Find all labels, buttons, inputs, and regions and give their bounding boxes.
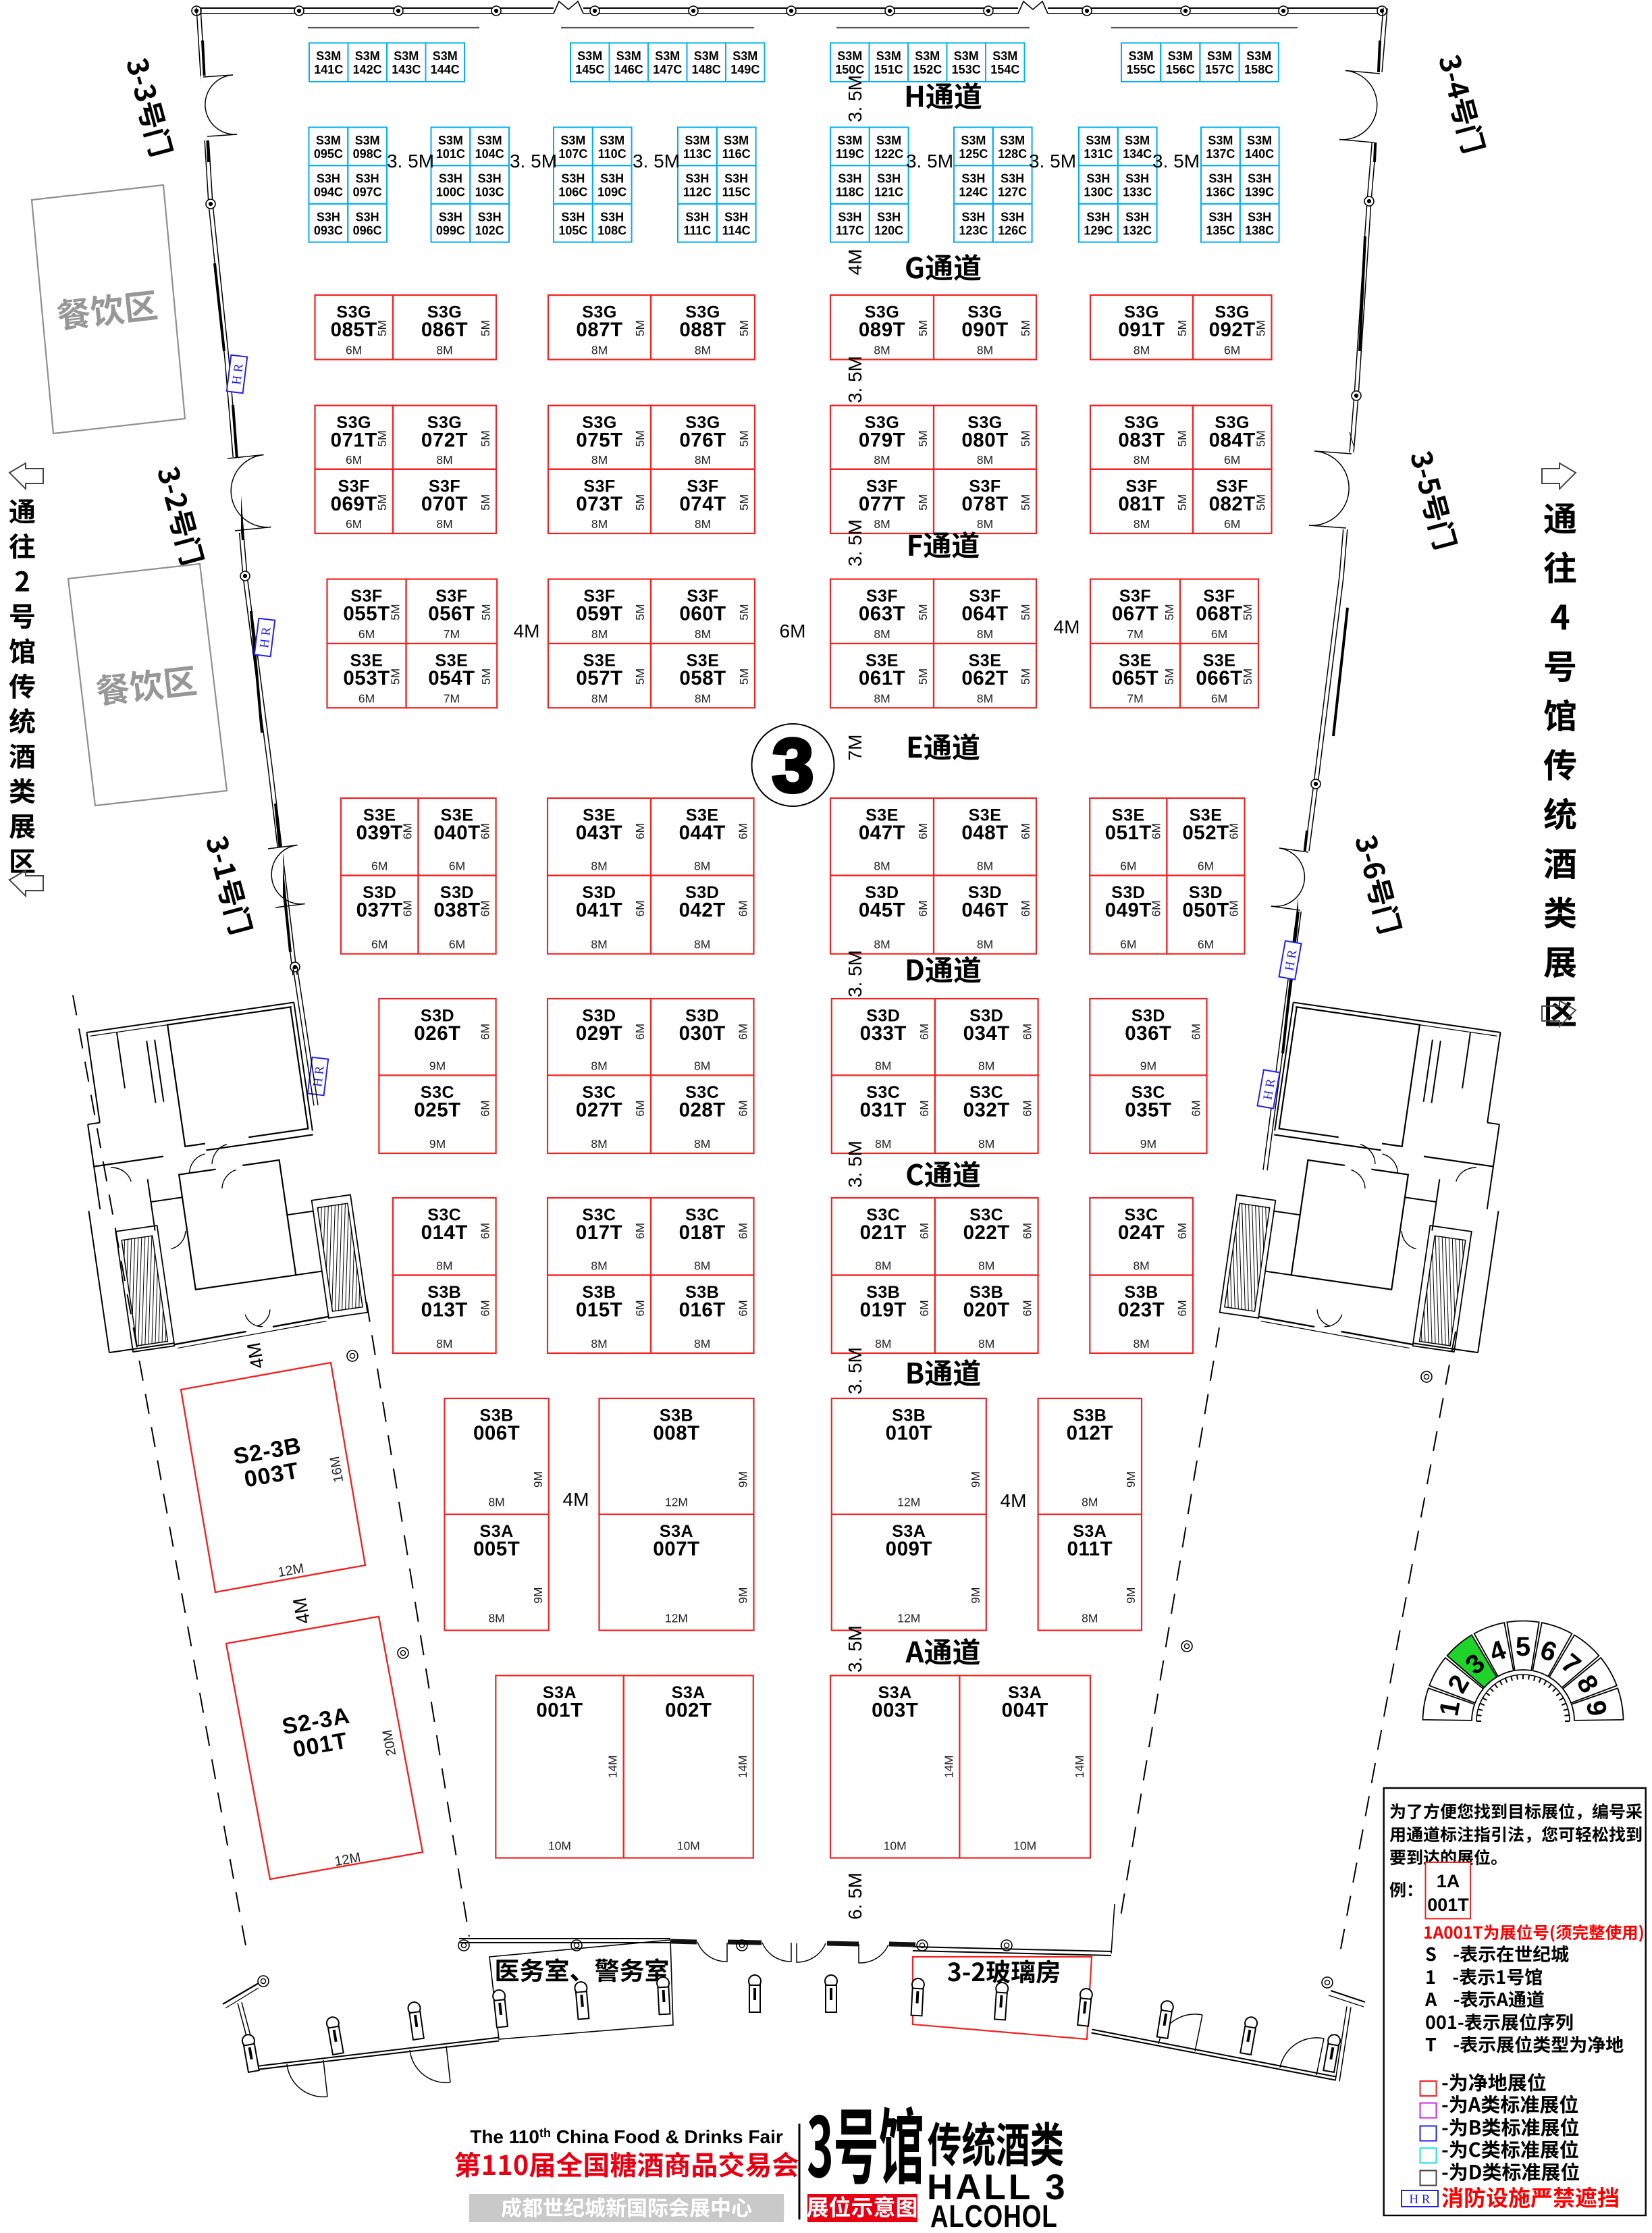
svg-text:S3M: S3M — [694, 49, 719, 63]
svg-text:6M: 6M — [479, 900, 492, 916]
svg-text:6M: 6M — [1190, 1100, 1203, 1116]
svg-text:033T: 033T — [860, 1022, 907, 1045]
svg-text:156C: 156C — [1166, 63, 1195, 76]
svg-text:015T: 015T — [576, 1299, 622, 1321]
svg-text:5M: 5M — [1019, 494, 1032, 510]
svg-text:S3H: S3H — [724, 172, 748, 186]
svg-text:6M: 6M — [1227, 900, 1241, 916]
svg-text:6M: 6M — [479, 1300, 492, 1316]
svg-text:14M: 14M — [606, 1755, 620, 1778]
svg-text:132C: 132C — [1123, 224, 1152, 237]
svg-text:8M: 8M — [874, 938, 890, 951]
svg-text:3. 5M: 3. 5M — [633, 151, 680, 172]
svg-text:5M: 5M — [479, 430, 492, 446]
svg-text:S3H: S3H — [877, 172, 901, 186]
svg-text:5M: 5M — [737, 320, 751, 336]
svg-text:8M: 8M — [977, 343, 993, 357]
svg-text:S3H: S3H — [1125, 172, 1149, 186]
svg-text:090T: 090T — [961, 319, 1008, 341]
svg-text:028T: 028T — [679, 1099, 726, 1122]
svg-text:S3H: S3H — [600, 210, 624, 224]
svg-text:S3M: S3M — [616, 49, 641, 63]
svg-text:5M: 5M — [1175, 430, 1189, 446]
svg-text:8M: 8M — [1133, 1259, 1149, 1273]
svg-text:5M: 5M — [916, 320, 930, 336]
svg-text:S3H: S3H — [600, 172, 624, 186]
svg-text:S3H: S3H — [724, 210, 748, 224]
svg-text:042T: 042T — [679, 899, 726, 922]
svg-text:036T: 036T — [1125, 1022, 1171, 1045]
svg-text:8M: 8M — [695, 627, 711, 641]
svg-text:085T: 085T — [331, 319, 377, 341]
svg-text:013T: 013T — [421, 1299, 468, 1321]
svg-text:155C: 155C — [1127, 63, 1156, 76]
svg-text:055T: 055T — [343, 603, 390, 625]
svg-text:12M: 12M — [897, 1612, 920, 1625]
svg-text:10M: 10M — [548, 1839, 571, 1853]
svg-text:8M: 8M — [591, 517, 608, 531]
svg-text:6M: 6M — [479, 1223, 492, 1239]
svg-text:5M: 5M — [1175, 494, 1189, 510]
svg-text:081T: 081T — [1118, 493, 1165, 515]
svg-text:8M: 8M — [591, 938, 607, 951]
svg-text:9M: 9M — [1124, 1471, 1138, 1488]
svg-text:S3M: S3M — [1129, 49, 1154, 63]
svg-text:048T: 048T — [961, 822, 1008, 844]
svg-text:122C: 122C — [874, 147, 903, 161]
svg-text:5M: 5M — [916, 668, 930, 685]
svg-text:10M: 10M — [884, 1839, 907, 1853]
svg-text:8M: 8M — [694, 1259, 710, 1273]
svg-text:135C: 135C — [1206, 224, 1235, 237]
svg-text:098C: 098C — [353, 147, 382, 161]
svg-text:052T: 052T — [1182, 822, 1229, 844]
svg-text:078T: 078T — [961, 493, 1008, 515]
svg-text:6M: 6M — [737, 1300, 750, 1316]
svg-text:8M: 8M — [591, 860, 607, 873]
svg-text:S3M: S3M — [1208, 134, 1233, 147]
svg-text:030T: 030T — [679, 1022, 726, 1045]
svg-text:038T: 038T — [433, 899, 480, 922]
svg-text:4M: 4M — [845, 249, 865, 275]
svg-text:137C: 137C — [1206, 147, 1235, 161]
svg-text:049T: 049T — [1105, 899, 1152, 922]
svg-text:089T: 089T — [859, 319, 905, 341]
svg-text:S3H: S3H — [877, 210, 901, 224]
svg-text:8M: 8M — [436, 453, 452, 467]
svg-text:149C: 149C — [730, 63, 760, 76]
svg-text:8M: 8M — [977, 453, 993, 467]
svg-text:6M: 6M — [1211, 691, 1227, 705]
svg-text:9M: 9M — [429, 1059, 446, 1073]
svg-text:065T: 065T — [1112, 667, 1158, 689]
svg-text:9M: 9M — [737, 1587, 750, 1604]
svg-text:3. 5M: 3. 5M — [845, 356, 865, 403]
svg-text:064T: 064T — [961, 603, 1008, 625]
svg-text:6M: 6M — [780, 621, 806, 641]
svg-text:6M: 6M — [917, 1300, 931, 1316]
svg-text:083T: 083T — [1118, 429, 1165, 452]
svg-text:116C: 116C — [722, 147, 751, 161]
svg-text:158C: 158C — [1244, 63, 1273, 76]
svg-text:S3M: S3M — [477, 134, 502, 147]
svg-text:S3H: S3H — [1086, 210, 1110, 224]
svg-text:026T: 026T — [414, 1022, 460, 1045]
svg-text:8M: 8M — [488, 1612, 504, 1625]
svg-text:019T: 019T — [860, 1299, 907, 1321]
svg-text:141C: 141C — [314, 63, 343, 76]
svg-text:5M: 5M — [633, 604, 647, 620]
svg-text:086T: 086T — [421, 319, 468, 341]
svg-text:8M: 8M — [874, 343, 890, 357]
svg-text:8M: 8M — [874, 453, 890, 467]
svg-text:6M: 6M — [1021, 1300, 1034, 1316]
svg-text:071T: 071T — [331, 429, 377, 452]
svg-text:003T: 003T — [872, 1699, 918, 1721]
svg-text:3. 5M: 3. 5M — [1029, 151, 1076, 172]
svg-text:S3M: S3M — [355, 134, 380, 147]
svg-text:143C: 143C — [392, 63, 421, 76]
svg-text:077T: 077T — [859, 493, 905, 515]
svg-text:018T: 018T — [679, 1221, 726, 1244]
svg-text:6M: 6M — [916, 900, 930, 916]
svg-text:7M: 7M — [1127, 627, 1143, 641]
svg-text:102C: 102C — [475, 224, 504, 237]
svg-text:S3H: S3H — [478, 172, 502, 186]
svg-text:044T: 044T — [679, 822, 726, 844]
svg-text:020T: 020T — [963, 1299, 1010, 1321]
svg-text:5M: 5M — [633, 668, 647, 685]
svg-text:6M: 6M — [1224, 517, 1240, 531]
svg-text:139C: 139C — [1245, 186, 1274, 199]
svg-text:5M: 5M — [633, 320, 647, 336]
svg-text:146C: 146C — [614, 63, 643, 76]
svg-text:8M: 8M — [436, 1259, 452, 1273]
svg-text:5M: 5M — [1254, 320, 1268, 336]
svg-text:8M: 8M — [694, 1059, 710, 1073]
svg-text:6M: 6M — [1120, 860, 1136, 873]
svg-text:118C: 118C — [836, 186, 864, 199]
svg-text:002T: 002T — [665, 1699, 712, 1721]
svg-text:8M: 8M — [436, 517, 452, 531]
svg-text:8M: 8M — [1134, 517, 1150, 531]
svg-text:S3H: S3H — [838, 172, 861, 186]
svg-text:6M: 6M — [401, 900, 415, 916]
svg-text:5M: 5M — [375, 320, 389, 336]
svg-text:12M: 12M — [665, 1496, 688, 1509]
svg-text:134C: 134C — [1123, 147, 1152, 161]
svg-text:129C: 129C — [1084, 224, 1113, 237]
svg-text:8M: 8M — [591, 1337, 607, 1350]
svg-text:096C: 096C — [353, 224, 382, 237]
svg-text:6M: 6M — [737, 1024, 750, 1040]
svg-text:035T: 035T — [1125, 1099, 1171, 1122]
svg-text:8M: 8M — [1134, 343, 1150, 357]
svg-text:3. 5M: 3. 5M — [845, 1140, 865, 1188]
svg-text:8M: 8M — [591, 691, 608, 705]
svg-text:5M: 5M — [479, 494, 492, 510]
svg-text:6M: 6M — [479, 1100, 492, 1116]
svg-text:S3M: S3M — [837, 134, 862, 147]
svg-text:6M: 6M — [358, 691, 375, 705]
svg-text:S3H: S3H — [317, 210, 340, 224]
svg-text:6M: 6M — [633, 1100, 647, 1116]
svg-text:S3M: S3M — [433, 49, 458, 63]
svg-text:130C: 130C — [1084, 186, 1113, 199]
svg-text:6M: 6M — [1019, 900, 1032, 916]
svg-text:4M: 4M — [514, 621, 540, 641]
svg-text:S3M: S3M — [876, 49, 901, 63]
svg-text:6M: 6M — [1175, 1300, 1189, 1316]
svg-text:5M: 5M — [737, 430, 751, 446]
svg-text:S3H: S3H — [1086, 172, 1110, 186]
svg-text:032T: 032T — [963, 1099, 1010, 1122]
svg-text:093C: 093C — [314, 224, 343, 237]
svg-text:9M: 9M — [1140, 1137, 1156, 1151]
svg-text:3. 5M: 3. 5M — [845, 1347, 865, 1394]
svg-text:110C: 110C — [598, 147, 627, 161]
svg-text:S3M: S3M — [655, 49, 680, 63]
svg-text:088T: 088T — [679, 319, 726, 341]
svg-text:8M: 8M — [874, 691, 890, 705]
svg-text:5M: 5M — [1254, 494, 1268, 510]
svg-text:8M: 8M — [977, 691, 993, 705]
svg-text:6M: 6M — [1149, 823, 1163, 839]
svg-text:142C: 142C — [353, 63, 382, 76]
svg-text:S3M: S3M — [394, 49, 419, 63]
svg-text:8M: 8M — [695, 453, 711, 467]
svg-text:007T: 007T — [653, 1538, 699, 1560]
svg-text:8M: 8M — [1082, 1612, 1098, 1625]
svg-text:S3H: S3H — [561, 210, 585, 224]
svg-text:6M: 6M — [358, 627, 375, 641]
svg-text:5M: 5M — [633, 494, 647, 510]
svg-text:6M: 6M — [737, 1223, 750, 1239]
svg-text:127C: 127C — [998, 186, 1027, 199]
svg-text:6M: 6M — [1120, 938, 1136, 951]
svg-text:H R: H R — [257, 626, 274, 649]
svg-text:6M: 6M — [1190, 1024, 1203, 1040]
svg-text:109C: 109C — [597, 186, 627, 199]
svg-text:3. 5M: 3. 5M — [906, 151, 953, 172]
svg-text:6M: 6M — [1211, 627, 1227, 641]
svg-text:008T: 008T — [653, 1422, 699, 1444]
svg-text:4M: 4M — [1054, 616, 1080, 637]
svg-text:H R: H R — [1409, 2192, 1430, 2207]
svg-text:6M: 6M — [737, 823, 750, 839]
svg-text:061T: 061T — [859, 667, 905, 689]
svg-text:8M: 8M — [694, 860, 710, 873]
svg-text:080T: 080T — [961, 429, 1008, 452]
svg-text:S3H: S3H — [1248, 172, 1271, 186]
svg-text:138C: 138C — [1245, 224, 1274, 237]
svg-text:S3M: S3M — [876, 134, 901, 147]
svg-text:8M: 8M — [875, 1137, 891, 1151]
svg-text:1A: 1A — [1437, 1871, 1460, 1891]
svg-text:9M: 9M — [737, 1471, 750, 1488]
svg-text:8M: 8M — [694, 938, 710, 951]
svg-text:111C: 111C — [683, 224, 711, 237]
svg-text:041T: 041T — [576, 899, 622, 922]
svg-text:5M: 5M — [1019, 604, 1032, 620]
svg-text:148C: 148C — [692, 63, 721, 76]
svg-text:114C: 114C — [722, 224, 751, 237]
svg-text:The 110th China Food & Drinks: The 110th China Food & Drinks Fair — [470, 2126, 783, 2147]
svg-text:4M: 4M — [1001, 1490, 1027, 1511]
svg-text:8M: 8M — [591, 627, 608, 641]
svg-text:S3H: S3H — [439, 172, 462, 186]
svg-text:6M: 6M — [449, 860, 465, 873]
svg-text:069T: 069T — [331, 493, 377, 515]
svg-text:S3H: S3H — [478, 210, 502, 224]
svg-text:066T: 066T — [1196, 667, 1242, 689]
svg-text:6M: 6M — [401, 823, 415, 839]
svg-text:8M: 8M — [695, 517, 711, 531]
svg-text:047T: 047T — [859, 822, 905, 844]
svg-text:5M: 5M — [1241, 668, 1254, 685]
svg-text:12M: 12M — [665, 1612, 688, 1625]
svg-text:6M: 6M — [633, 900, 647, 916]
svg-text:8M: 8M — [978, 1059, 994, 1073]
svg-text:039T: 039T — [356, 822, 403, 844]
svg-text:060T: 060T — [679, 603, 726, 625]
svg-text:075T: 075T — [576, 429, 622, 452]
svg-text:S3H: S3H — [356, 172, 379, 186]
svg-text:S3M: S3M — [724, 134, 749, 147]
svg-text:054T: 054T — [428, 667, 475, 689]
svg-text:5M: 5M — [737, 604, 751, 620]
svg-text:S3M: S3M — [1000, 134, 1025, 147]
svg-text:S3M: S3M — [1125, 134, 1150, 147]
svg-text:145C: 145C — [575, 63, 604, 76]
svg-text:8M: 8M — [875, 1259, 891, 1273]
svg-text:S3H: S3H — [685, 210, 709, 224]
svg-text:S3H: S3H — [439, 210, 462, 224]
svg-text:5M: 5M — [737, 494, 751, 510]
svg-text:133C: 133C — [1123, 186, 1152, 199]
svg-text:046T: 046T — [961, 899, 1008, 922]
svg-text:012T: 012T — [1067, 1422, 1113, 1444]
svg-text:S3H: S3H — [961, 172, 985, 186]
svg-text:051T: 051T — [1105, 822, 1152, 844]
svg-text:8M: 8M — [694, 1137, 710, 1151]
svg-text:5M: 5M — [1163, 604, 1176, 620]
svg-text:6M: 6M — [1198, 860, 1214, 873]
svg-text:S3H: S3H — [1208, 210, 1232, 224]
svg-text:5M: 5M — [479, 668, 493, 685]
svg-text:5: 5 — [1516, 1632, 1530, 1662]
svg-text:099C: 099C — [436, 224, 465, 237]
svg-text:7M: 7M — [1127, 691, 1143, 705]
svg-text:108C: 108C — [597, 224, 627, 237]
svg-text:5M: 5M — [916, 604, 930, 620]
svg-text:9M: 9M — [531, 1471, 545, 1488]
svg-text:040T: 040T — [433, 822, 480, 844]
svg-text:6M: 6M — [633, 823, 647, 839]
svg-text:8M: 8M — [978, 1137, 994, 1151]
svg-text:043T: 043T — [576, 822, 622, 844]
svg-text:124C: 124C — [959, 186, 988, 199]
svg-text:6M: 6M — [1021, 1024, 1034, 1040]
svg-text:014T: 014T — [421, 1221, 468, 1244]
svg-text:154C: 154C — [990, 63, 1019, 76]
svg-text:6M: 6M — [449, 938, 465, 951]
svg-text:022T: 022T — [963, 1221, 1010, 1244]
svg-text:016T: 016T — [679, 1299, 726, 1321]
svg-text:S3M: S3M — [355, 49, 380, 63]
svg-text:S3M: S3M — [732, 49, 757, 63]
svg-text:097C: 097C — [353, 186, 382, 199]
svg-text:8M: 8M — [874, 627, 890, 641]
svg-text:5M: 5M — [389, 668, 402, 685]
svg-text:021T: 021T — [860, 1221, 907, 1244]
svg-text:100C: 100C — [436, 186, 465, 199]
svg-text:082T: 082T — [1209, 493, 1256, 515]
svg-text:8M: 8M — [875, 1337, 891, 1350]
svg-text:8M: 8M — [977, 938, 993, 951]
svg-text:063T: 063T — [859, 603, 905, 625]
svg-text:068T: 068T — [1196, 603, 1242, 625]
svg-text:053T: 053T — [343, 667, 390, 689]
svg-text:S3M: S3M — [560, 134, 585, 147]
svg-text:S3M: S3M — [915, 49, 940, 63]
svg-text:6M: 6M — [346, 453, 362, 467]
svg-text:6M: 6M — [917, 1100, 931, 1116]
svg-text:095C: 095C — [314, 147, 343, 161]
svg-text:136C: 136C — [1206, 186, 1235, 199]
svg-text:076T: 076T — [679, 429, 726, 452]
svg-text:8M: 8M — [977, 860, 993, 873]
svg-text:9M: 9M — [429, 1137, 446, 1151]
svg-text:120C: 120C — [874, 224, 903, 237]
svg-text:073T: 073T — [576, 493, 622, 515]
svg-text:6M: 6M — [479, 823, 492, 839]
svg-text:5M: 5M — [1019, 320, 1032, 336]
svg-text:153C: 153C — [952, 63, 981, 76]
svg-text:7M: 7M — [444, 691, 460, 705]
svg-text:140C: 140C — [1245, 147, 1274, 161]
svg-text:103C: 103C — [475, 186, 504, 199]
svg-text:3. 5M: 3. 5M — [845, 1625, 865, 1673]
svg-text:9M: 9M — [1140, 1059, 1156, 1073]
svg-text:8M: 8M — [874, 860, 890, 873]
svg-text:6M: 6M — [346, 517, 362, 531]
svg-text:5M: 5M — [375, 494, 389, 510]
svg-text:031T: 031T — [860, 1099, 907, 1122]
svg-text:006T: 006T — [473, 1422, 520, 1444]
svg-text:6M: 6M — [916, 823, 930, 839]
svg-text:010T: 010T — [886, 1422, 932, 1444]
svg-text:5M: 5M — [1175, 320, 1189, 336]
svg-text:5M: 5M — [479, 320, 492, 336]
svg-text:6M: 6M — [1224, 343, 1240, 357]
svg-text:150C: 150C — [835, 63, 864, 76]
svg-text:147C: 147C — [653, 63, 682, 76]
svg-text:S3M: S3M — [1246, 49, 1271, 63]
svg-text:6M: 6M — [346, 343, 362, 357]
svg-text:5M: 5M — [633, 430, 647, 446]
svg-text:8M: 8M — [591, 1059, 607, 1073]
svg-text:S3M: S3M — [316, 134, 341, 147]
svg-text:8M: 8M — [695, 343, 711, 357]
svg-text:017T: 017T — [576, 1221, 622, 1244]
svg-text:3. 5M: 3. 5M — [1152, 151, 1200, 172]
svg-text:S3M: S3M — [316, 49, 341, 63]
svg-text:144C: 144C — [431, 63, 460, 76]
svg-text:6M: 6M — [1227, 823, 1241, 839]
svg-text:S3M: S3M — [1247, 134, 1272, 147]
svg-text:3. 5M: 3. 5M — [845, 75, 865, 122]
